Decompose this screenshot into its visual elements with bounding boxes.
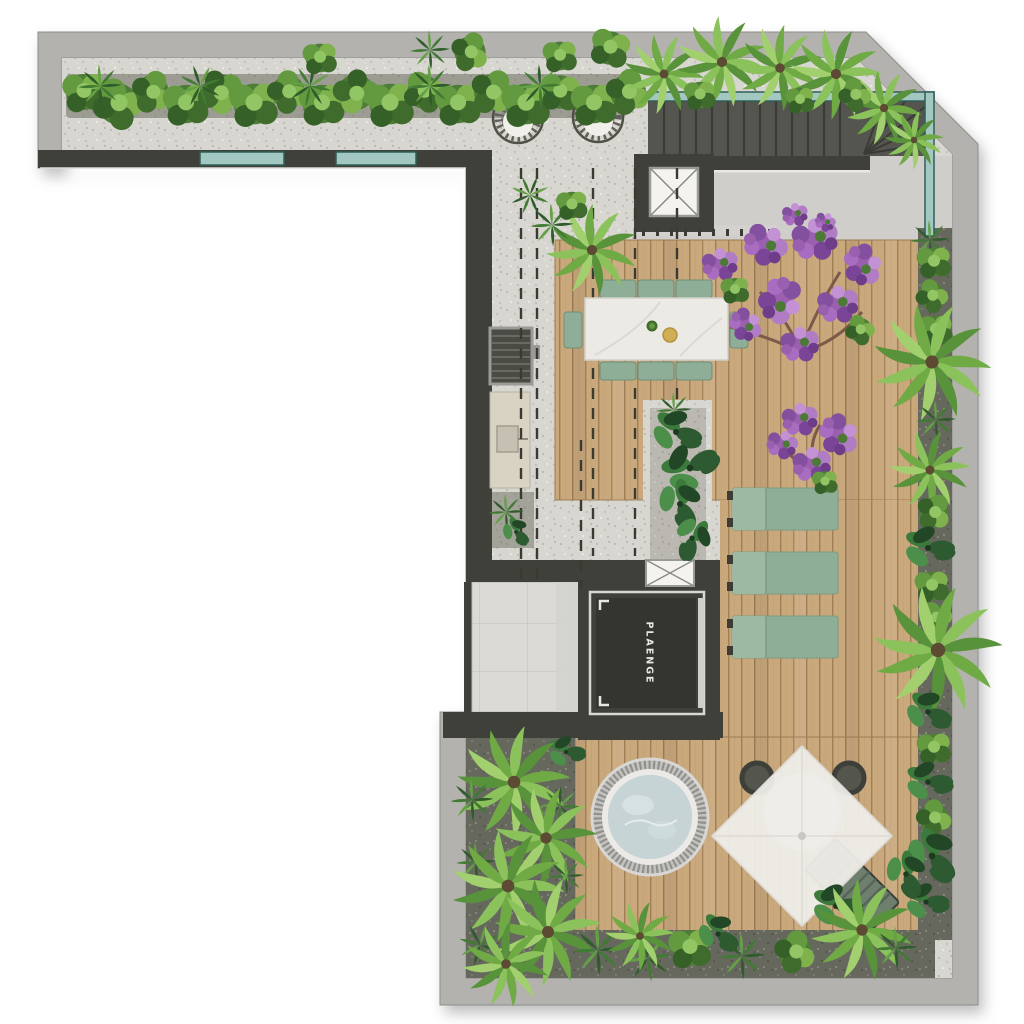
rooftop-plan: PLAENGE [0, 0, 1024, 1024]
hot-tub [592, 759, 708, 875]
sun-lounger [727, 552, 838, 594]
glass-panel [336, 152, 416, 165]
sink [497, 426, 518, 452]
dining-chair [676, 362, 712, 380]
floor-plan-canvas: PLAENGE [0, 0, 1024, 1024]
west-wall [466, 150, 492, 582]
dining-chair [638, 362, 674, 380]
dining-chair [564, 312, 582, 348]
dining-chair [676, 280, 712, 298]
utility-room [464, 582, 578, 712]
hot-tub-water [608, 775, 692, 859]
sun-lounger [727, 488, 838, 530]
service-elevator: PLAENGE [578, 560, 720, 740]
elevator-brand-label: PLAENGE [644, 621, 655, 684]
dining-chair [638, 280, 674, 298]
lobby-strip [556, 582, 578, 712]
glass-panel [200, 152, 284, 165]
dining-chair [600, 362, 636, 380]
table-plant-top [649, 323, 655, 329]
dining-chair [600, 280, 636, 298]
sun-lounger [727, 616, 838, 658]
elevator-shaft-top [634, 154, 714, 232]
stair-glass-rail-side [925, 92, 934, 236]
sun-loungers [727, 488, 838, 658]
umbrella-hub [798, 832, 806, 840]
serving-tray [663, 328, 677, 342]
